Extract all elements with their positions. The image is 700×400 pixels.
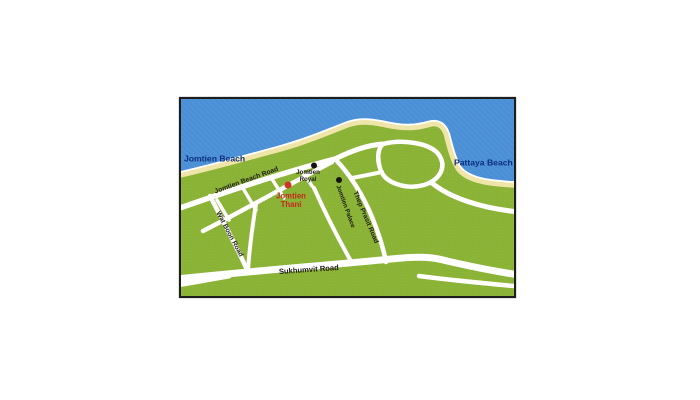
jomtien-pattaya-map: Jomtien Beach Pattaya Beach Jomtien Beac… bbox=[179, 97, 516, 298]
jomtien-royal-dot bbox=[311, 163, 317, 169]
jomtien-palace-dot bbox=[336, 177, 342, 183]
jomtien-thani-dot bbox=[285, 182, 292, 189]
jomtien-beach-label: Jomtien Beach bbox=[184, 154, 245, 164]
page-background: Jomtien Beach Pattaya Beach Jomtien Beac… bbox=[0, 0, 700, 400]
jomtien-royal-label-line1: Jomtien bbox=[296, 169, 320, 176]
jomtien-thani-label-line2: Thani bbox=[281, 200, 302, 209]
pattaya-beach-label: Pattaya Beach bbox=[454, 158, 513, 168]
jomtien-royal-label-line2: Royal bbox=[300, 176, 317, 183]
map-graphic: Jomtien Beach Pattaya Beach Jomtien Beac… bbox=[181, 99, 514, 296]
